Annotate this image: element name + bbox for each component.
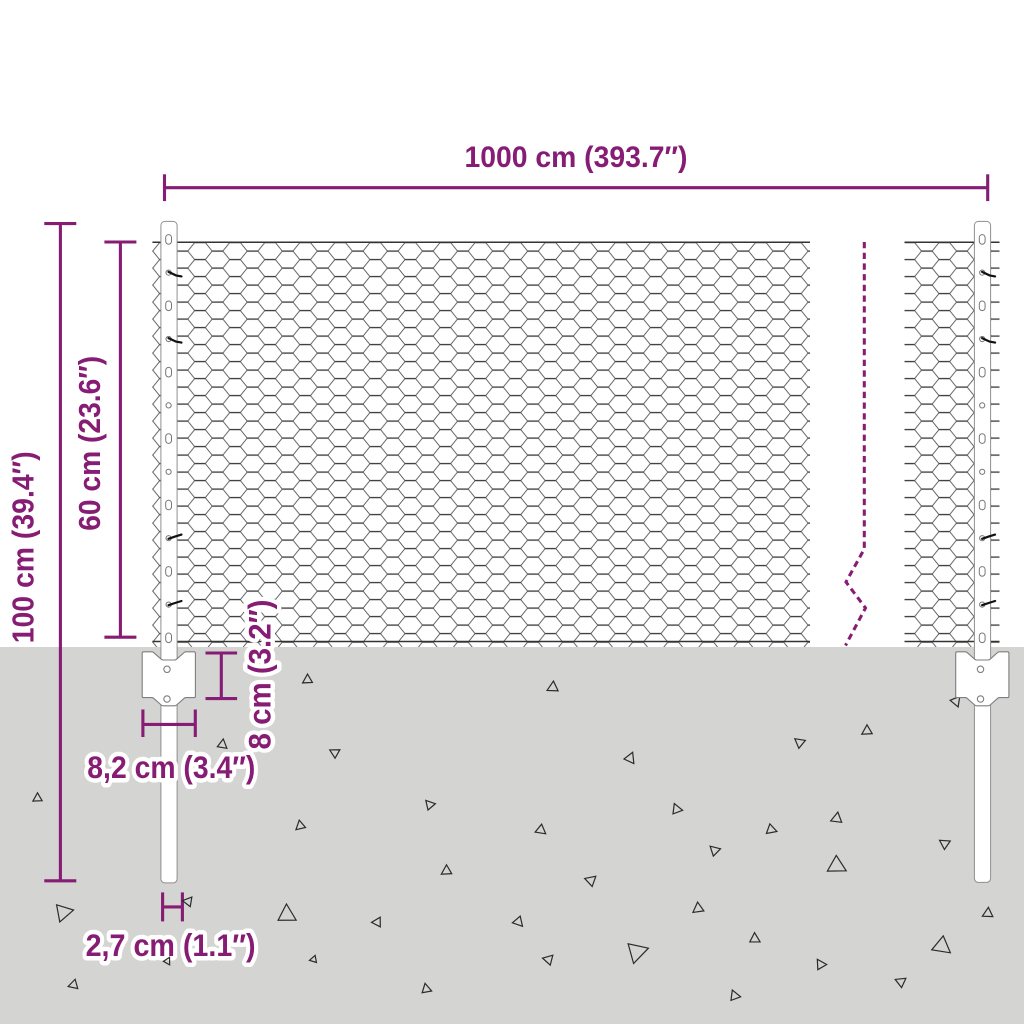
svg-text:2,7 cm (1.1″): 2,7 cm (1.1″) (86, 927, 256, 963)
svg-text:60 cm (23.6″): 60 cm (23.6″) (72, 356, 107, 531)
svg-text:8 cm (3.2″): 8 cm (3.2″) (242, 600, 278, 750)
svg-text:100 cm (39.4″): 100 cm (39.4″) (5, 451, 40, 643)
svg-text:1000 cm (393.7″): 1000 cm (393.7″) (465, 141, 688, 174)
svg-text:8,2 cm (3.4″): 8,2 cm (3.4″) (87, 749, 255, 785)
